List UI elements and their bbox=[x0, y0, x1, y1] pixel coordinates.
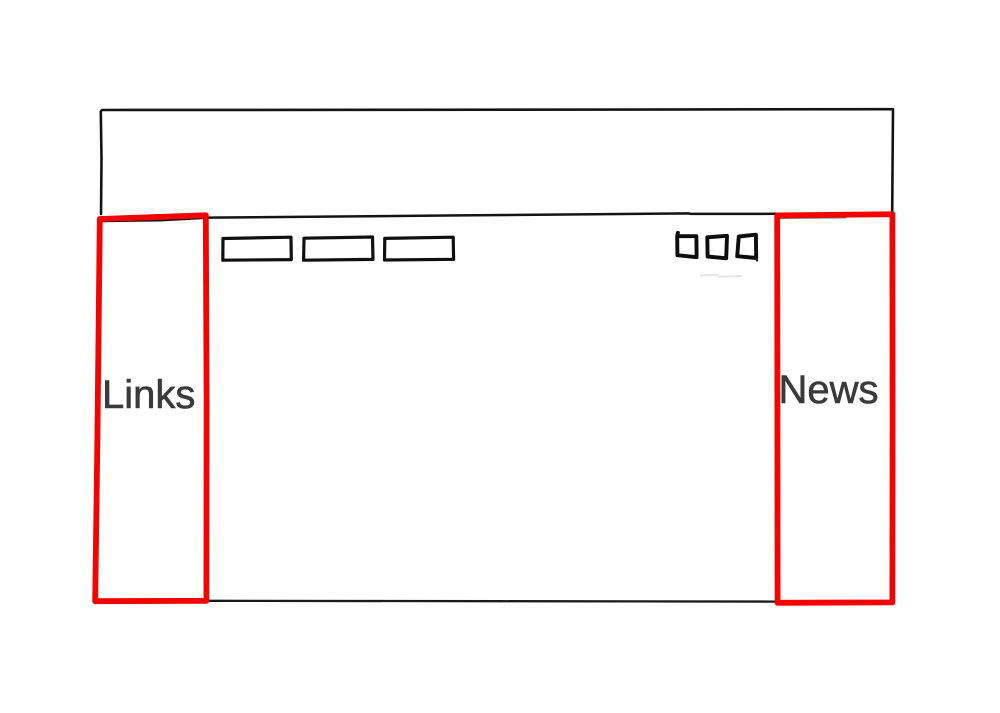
svg-text:News: News bbox=[779, 368, 879, 412]
svg-text:Links: Links bbox=[102, 373, 195, 417]
